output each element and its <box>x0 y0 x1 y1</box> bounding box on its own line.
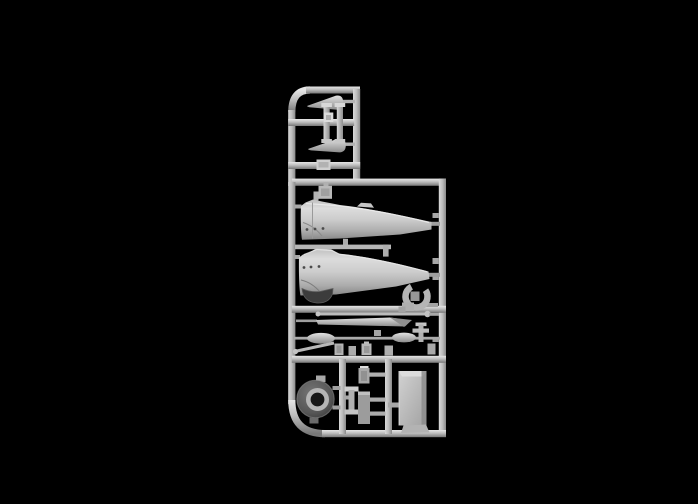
rail-main-top <box>292 179 446 186</box>
part-fitting-3 <box>362 342 372 356</box>
runner-bottom-right <box>385 359 392 434</box>
small-parts-cell <box>293 311 440 356</box>
part-fitting-4 <box>385 346 394 356</box>
gate <box>314 192 319 201</box>
fuselage-canopy-bump <box>357 203 374 208</box>
gate <box>370 412 386 416</box>
gate <box>343 396 349 400</box>
gate <box>345 143 355 146</box>
part-box-tall <box>358 392 386 425</box>
part-rod-diagonal <box>293 343 334 354</box>
part-tank-right <box>392 333 416 343</box>
part-fuselage-lower <box>299 249 440 296</box>
gate <box>388 403 400 408</box>
gate <box>296 320 317 323</box>
gate <box>333 406 341 410</box>
part-fuselage-upper <box>301 200 440 240</box>
part-panel-large <box>388 371 427 426</box>
rail-topcell-top <box>306 87 360 94</box>
rail-divider-lower <box>292 356 446 363</box>
part-bottle <box>359 366 386 384</box>
gate <box>370 373 386 377</box>
part-fitting-small <box>374 330 381 336</box>
part-tank-left <box>307 333 335 344</box>
part-fitting-2 <box>349 346 357 356</box>
top-cell-parts <box>307 95 355 170</box>
photo-stage <box>0 0 698 504</box>
gate <box>343 100 355 103</box>
gate <box>333 386 341 390</box>
part-fitting-1 <box>335 344 344 356</box>
gate <box>370 398 386 402</box>
rail-main-left <box>288 182 295 404</box>
gate <box>295 205 302 209</box>
part-fitting-5 <box>428 344 436 355</box>
sprue-photo <box>0 0 698 504</box>
rail-topcell-right <box>353 89 360 184</box>
fuselage-cell-parts <box>295 182 441 312</box>
gate-stub <box>433 213 439 218</box>
gate <box>429 313 439 316</box>
part-cowling-ring <box>297 376 341 424</box>
part-clip-square <box>324 113 334 123</box>
part-wedge <box>401 425 430 434</box>
part-number-tab <box>317 160 331 171</box>
rail-topcell-middle <box>288 119 354 126</box>
gate-stub <box>433 258 439 264</box>
part-blade-tapered <box>296 318 412 328</box>
bottom-cell-parts <box>297 366 430 433</box>
